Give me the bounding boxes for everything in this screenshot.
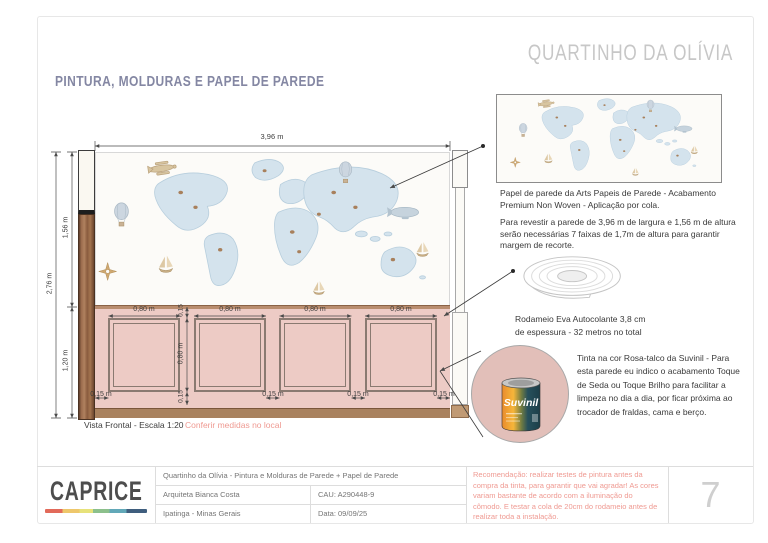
right-wall-element-base	[451, 405, 469, 418]
panel-inner-molding	[199, 323, 261, 387]
wallpaper-caption: Papel de parede da Arts Papeis de Parede…	[500, 188, 745, 211]
rodameio-caption-line2: de espessura - 32 metros no total	[515, 327, 642, 339]
dim-panel-1-width: 0,80 m	[124, 306, 164, 313]
panel-inner-molding	[284, 323, 346, 387]
world-map-thumbnail-illustration	[497, 95, 721, 182]
dim-margin-right: 0,15 m	[424, 391, 464, 398]
wainscot-panel-3	[279, 318, 351, 392]
wainscot-panel-1	[108, 318, 180, 392]
left-wood-trim	[78, 214, 95, 420]
footer-project-title: Quartinho da Olívia - Pintura e Molduras…	[163, 466, 398, 485]
brand-logo: CAPRICE	[37, 466, 155, 523]
dim-wainscot-height: 1,20 m	[63, 341, 70, 381]
footer-col-divider	[310, 485, 311, 523]
dim-total-height: 2,76 m	[47, 264, 54, 304]
footer-architect: Arquiteta Bianca Costa	[163, 485, 240, 504]
rosa-talco-color-swatch: Suvinil	[471, 345, 569, 443]
footer-divider-table	[466, 466, 467, 523]
panel-inner-molding	[113, 323, 175, 387]
footer-divider-logo	[155, 466, 156, 523]
dim-margin-mid-1: 0,15 m	[253, 391, 293, 398]
world-map-illustration	[96, 153, 449, 306]
wainscot-panel-2	[194, 318, 266, 392]
paint-can-illustration: Suvinil	[498, 374, 544, 434]
dim-total-width: 3,96 m	[252, 132, 292, 141]
dim-panel-height: 0,80 m	[178, 334, 185, 374]
footer-cau: CAU: A290448-9	[318, 485, 374, 504]
dim-panel-3-width: 0,80 m	[295, 306, 335, 313]
drawing-caption-note: Conferir medidas no local	[185, 420, 281, 430]
dim-wallpaper-height: 1,56 m	[63, 208, 70, 248]
project-sheet: QUARTINHO DA OLÍVIA PINTURA, MOLDURAS E …	[0, 0, 768, 543]
page-title: QUARTINHO DA OLÍVIA	[528, 40, 733, 66]
wallpaper-thumbnail	[496, 94, 722, 183]
wainscot-panel-4	[365, 318, 437, 392]
dim-gap-top: 0,15	[178, 291, 185, 331]
dim-gap-bottom: 0,15	[178, 377, 185, 417]
wallpaper-note: Para revestir a parede de 3,96 m de larg…	[500, 217, 750, 252]
dim-panel-2-width: 0,80 m	[210, 306, 250, 313]
brand-logo-rainbow-bar	[45, 509, 147, 513]
footer-date: Data: 09/09/25	[318, 504, 367, 523]
right-wall-element-top	[452, 150, 468, 188]
right-wall-element-mid	[455, 188, 465, 312]
baseboard	[95, 408, 450, 418]
drawing-caption: Vista Frontal - Escala 1:20	[84, 420, 184, 430]
dim-margin-mid-2: 0,15 m	[338, 391, 378, 398]
brand-logo-text: CAPRICE	[50, 476, 143, 507]
paint-note: Tinta na cor Rosa-talco da Suvinil - Par…	[577, 352, 745, 419]
dim-margin-left: 0,15 m	[81, 391, 121, 398]
page-number: 7	[668, 466, 753, 523]
left-wall-element	[78, 150, 95, 214]
footer-recommendation: Recomendação: realizar testes de pintura…	[473, 470, 663, 523]
wall-wallpaper-area	[95, 152, 450, 307]
rodameio-caption-line1: Rodameio Eva Autocolante 3,8 cm	[515, 314, 645, 326]
eva-trim-roll-illustration	[512, 252, 638, 306]
footer-city: Ipatinga - Minas Gerais	[163, 504, 241, 523]
paint-brand-label: Suvinil	[504, 397, 540, 409]
dim-panel-4-width: 0,80 m	[381, 306, 421, 313]
panel-inner-molding	[370, 323, 432, 387]
section-title: PINTURA, MOLDURAS E PAPEL DE PAREDE	[55, 73, 324, 90]
